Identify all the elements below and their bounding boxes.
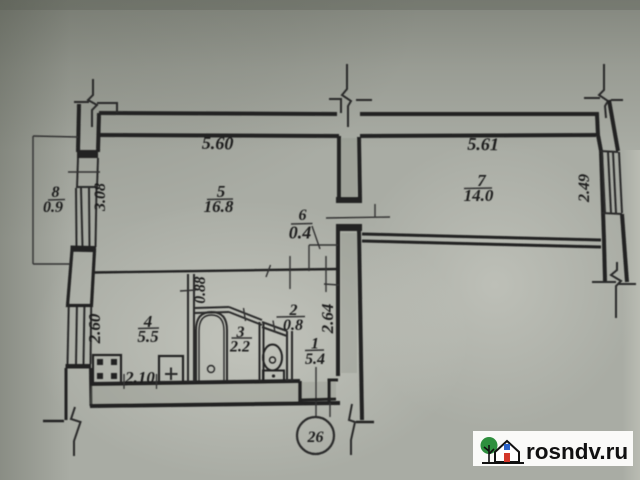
svg-text:5.5: 5.5 xyxy=(137,327,159,346)
svg-text:2.2: 2.2 xyxy=(229,339,250,356)
svg-text:5.4: 5.4 xyxy=(305,351,325,368)
svg-text:0.9: 0.9 xyxy=(43,199,63,216)
svg-text:16.8: 16.8 xyxy=(204,197,234,216)
svg-text:6: 6 xyxy=(299,207,307,224)
svg-text:5.61: 5.61 xyxy=(467,134,499,155)
svg-text:0.8: 0.8 xyxy=(283,317,303,334)
svg-text:2.64: 2.64 xyxy=(318,304,337,335)
svg-text:14.0: 14.0 xyxy=(464,186,494,205)
svg-text:5.60: 5.60 xyxy=(202,133,234,154)
svg-text:26: 26 xyxy=(307,429,324,446)
svg-text:2.49: 2.49 xyxy=(576,174,593,203)
svg-text:3.08: 3.08 xyxy=(92,183,109,212)
svg-text:0.88: 0.88 xyxy=(192,276,209,303)
svg-text:rosndv.ru: rosndv.ru xyxy=(526,439,628,464)
svg-text:2.60: 2.60 xyxy=(85,313,104,344)
svg-text:2.10: 2.10 xyxy=(124,368,155,387)
svg-text:0.4: 0.4 xyxy=(289,223,312,243)
